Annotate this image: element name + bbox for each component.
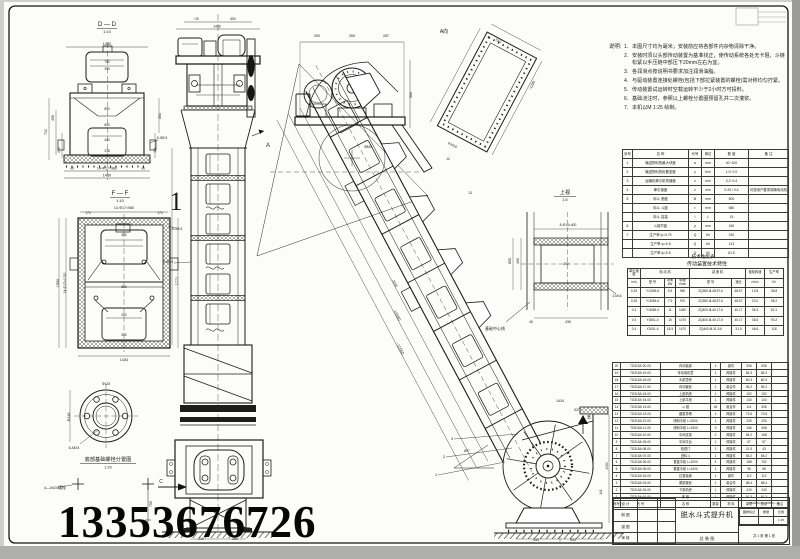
table-cell: 1	[711, 418, 721, 425]
bom-table: 20TD315A·20-00传动装置1部件53653619TD315A·19-0…	[612, 362, 788, 508]
table-cell: TD315A·03-00	[621, 480, 661, 487]
view-scale-rail: 1:5	[562, 198, 567, 202]
table-cell	[772, 487, 789, 494]
table-cell: 圆弧导槽	[661, 411, 711, 418]
table-cell: 73.6	[742, 411, 757, 418]
table-cell: mm	[702, 159, 715, 168]
dimension-label: 1771	[175, 277, 179, 285]
table-cell: 生产率	[765, 269, 784, 279]
table-cell: 型 号	[690, 278, 732, 288]
dimension-label: 170	[157, 211, 163, 215]
table-cell: 上部机壳	[661, 390, 711, 397]
table-cell: 86.3	[757, 369, 772, 376]
table-cell: 98	[742, 466, 757, 473]
table-cell	[772, 369, 789, 376]
dimension-label: 2	[443, 455, 445, 459]
dimension-label: 8-Φ14=400	[560, 223, 577, 227]
table-cell	[623, 249, 633, 258]
dimension-label: 101	[153, 147, 157, 153]
table-cell: 970	[676, 297, 690, 307]
table-cell: 93.2	[765, 316, 784, 326]
table-cell	[623, 240, 633, 249]
table-cell: 14	[613, 404, 621, 411]
table-cell: 设 计	[614, 499, 638, 510]
table-cell: TD315A·20-00	[621, 363, 661, 370]
dimension-label: 13	[468, 191, 472, 195]
table-cell: 21.5	[742, 445, 757, 452]
dimension-label: 6-Φ8.5	[157, 136, 168, 140]
table-cell: L	[702, 213, 715, 222]
table-cell: 生产率 ψ=0.5	[633, 249, 689, 258]
table-cell: 960	[676, 288, 690, 298]
table-cell	[658, 532, 676, 543]
dimension-label: 600	[104, 123, 110, 127]
table-cell: 可按用户要求调换电动机	[749, 186, 789, 195]
note-item: 2.安装时须以头部传动装置为基准找正，使传动系统各处无卡阻，斗链松紧以手压链中部…	[624, 53, 787, 66]
dimension-label: 6-M24	[69, 446, 80, 450]
note-item: 5.传动装置试运转时空载运转不少于2小时方可投料。	[624, 87, 787, 94]
note-item: 3.各润滑点按说明书要求加注润滑油脂。	[624, 69, 787, 76]
table-cell: 5	[613, 466, 621, 473]
table-cell: 40.17	[732, 316, 746, 326]
table-cell: 电 动 机	[641, 269, 690, 279]
table-cell: 205	[757, 418, 772, 425]
table-cell: 4	[711, 459, 721, 466]
table-cell: TD315A·12-00	[621, 418, 661, 425]
table-cell: 制 图	[614, 510, 638, 521]
dimension-label: ~25	[193, 17, 199, 21]
table-cell: 料斗 斗距	[633, 204, 689, 213]
table-cell: 斗链节距	[633, 222, 689, 231]
table-cell: 1	[711, 383, 721, 390]
table-cell: 1	[711, 363, 721, 370]
table-cell: 65.2	[742, 452, 757, 459]
table-cell: 65.2	[757, 452, 772, 459]
table-cell: 46.6	[746, 326, 765, 336]
view-arrow-a: A	[266, 143, 270, 149]
table-cell	[772, 411, 789, 418]
dimension-label: 46	[141, 167, 145, 171]
table-cell: 96.2	[742, 383, 757, 390]
table-cell: 1	[711, 376, 721, 383]
table-cell: 62.1	[765, 307, 784, 317]
table-cell: 48.57	[732, 288, 746, 298]
table-cell: 牵引速度	[628, 269, 641, 279]
table-cell: 43	[757, 445, 772, 452]
notes-label: 说明:	[609, 44, 621, 51]
table-cell: 7	[623, 231, 633, 240]
table-cell: 输送物料的最大块度	[633, 159, 689, 168]
table-cell: t/h	[702, 231, 715, 240]
table-cell: 112	[742, 473, 757, 480]
table-cell: TD315A·14-00	[621, 404, 661, 411]
table-cell: 上部平段	[661, 397, 711, 404]
table-cell	[772, 397, 789, 404]
table-cell: 检视门	[661, 445, 711, 452]
table-cell: ZQ350-Ⅲ-48.57-Ⅱ	[690, 297, 732, 307]
table-cell	[772, 376, 789, 383]
note-item: 6.基础浇注时，参照以上螺栓分置图预留孔并二次灌浆。	[624, 96, 787, 103]
table-cell: 205	[742, 418, 757, 425]
table-cell: 焊接件	[721, 425, 742, 432]
table-cell	[749, 177, 789, 186]
phone-number-watermark: 13353676726	[58, 496, 317, 548]
dimension-label: 1050	[605, 462, 609, 470]
view-title-rail: 上视	[560, 188, 570, 196]
note-item: 7.本机以M 1:25 绘制。	[624, 105, 787, 112]
dimension-label: 287	[383, 34, 389, 38]
table-cell	[658, 510, 676, 521]
table-cell: 5	[623, 195, 633, 204]
table-cell: 13	[613, 411, 621, 418]
table-cell: 88.4	[757, 480, 772, 487]
dimension-label: 712	[44, 129, 48, 135]
note-item: 4.与驱动装置连接处螺栓(包括下部拉紧装置的螺栓)需对称均匀拧紧。	[624, 78, 787, 85]
table-cell	[623, 204, 633, 213]
table-cell: 8	[613, 445, 621, 452]
table-cell: Q	[689, 240, 702, 249]
dimension-label: 430	[565, 320, 571, 324]
table-cell	[772, 466, 789, 473]
table-cell: 传动装置	[661, 363, 711, 370]
table-cell: Y160M-4	[641, 307, 665, 317]
table-cell: 功率 kW	[665, 278, 676, 288]
table-cell: 焊接件	[721, 369, 742, 376]
table-cell: TD315A·09-00	[621, 438, 661, 445]
table-cell: 15	[613, 397, 621, 404]
view-arrow-c: C	[159, 479, 163, 485]
title-block-right: 7.5A68×(Φ)—45M(—)·· 图样标记重量比例1:25 共 1 张 第…	[739, 498, 789, 544]
table-cell: 1:25	[774, 517, 789, 525]
table-cell: 536	[757, 363, 772, 370]
table-cell: m/s	[702, 177, 715, 186]
table-cell: 倾斜中段 L=1500	[661, 425, 711, 432]
drawing-code: 7.5A68×(Φ)—45M(—)··	[739, 498, 789, 508]
table-cell: 19	[613, 369, 621, 376]
table-cell: 18	[613, 376, 621, 383]
table-cell: 18.5	[665, 326, 676, 336]
table-cell: 传动链轮	[661, 383, 711, 390]
dimension-label: 8-Φ8.5	[163, 260, 173, 264]
table-cell: 15	[665, 316, 676, 326]
table-cell: 名 称	[633, 150, 689, 159]
table-cell: TD315A·19-00	[621, 369, 661, 376]
table-cell: m/s	[702, 186, 715, 195]
table-cell: Y180L-4	[641, 316, 665, 326]
table-cell: TD315A·06-00	[621, 459, 661, 466]
table-cell	[749, 204, 789, 213]
table-cell: 98	[757, 466, 772, 473]
table-cell: 16	[613, 390, 621, 397]
table-cell: 3	[613, 480, 621, 487]
table-cell: t/h	[702, 240, 715, 249]
dimension-label: 12	[446, 157, 450, 161]
table-cell: 料斗 宽度	[633, 195, 689, 204]
table-cell	[623, 213, 633, 222]
table-cell: 备 注	[749, 150, 789, 159]
table-cell	[772, 459, 789, 466]
table-cell: 36.6	[746, 316, 765, 326]
table-cell: 拉紧装置	[661, 473, 711, 480]
table-cell: TD315A·16-00	[621, 390, 661, 397]
table-cell: 31.5	[732, 326, 746, 336]
sheet-number: 1	[170, 187, 183, 216]
table-cell: 焊接件	[721, 445, 742, 452]
dimension-label: 14-Φ17=1030	[63, 272, 67, 293]
table-cell: γ	[689, 168, 702, 177]
table-cell: TD315A·17-00	[621, 383, 661, 390]
table-cell: 焊接件	[721, 487, 742, 494]
chain-guide-dark	[248, 55, 255, 77]
table-cell: 152	[757, 390, 772, 397]
table-cell: mm	[702, 195, 715, 204]
table-cell: 10	[613, 431, 621, 438]
table-cell: 96.2	[757, 383, 772, 390]
table-cell: 传动电机罩	[661, 369, 711, 376]
dimension-label: 1	[435, 473, 437, 477]
dimension-label: 238	[104, 149, 110, 153]
table-cell: 152	[742, 390, 757, 397]
table-cell: 1	[623, 159, 633, 168]
table-cell: 134	[742, 397, 757, 404]
drawing-sheet: D — D1:10143075029085060044423814-Φ17=98…	[0, 0, 800, 559]
table-cell: 20.0	[746, 297, 765, 307]
table-cell: 150	[715, 231, 749, 240]
table-cell: 描 图	[614, 521, 638, 532]
table-cell: 斗 链	[661, 404, 711, 411]
dimension-label: 400	[516, 258, 520, 264]
table-cell: 运输机牵引机构速度	[633, 177, 689, 186]
notes-list: 1.本图尺寸均为毫米；安装前应将各部件内杂物清除干净。2.安装时须以头部传动装置…	[624, 44, 787, 111]
dimension-label: 530	[121, 333, 127, 337]
table-cell: t/m³	[702, 168, 715, 177]
dimension-label: 141	[599, 489, 603, 495]
table-cell: 1460	[676, 307, 690, 317]
table-cell: 306	[757, 404, 772, 411]
title-block: 设 计制 图描 图审 核 脱水斗式提升机 总 装 图 7.5A68×(Φ)—45…	[612, 497, 790, 545]
table-cell: TD315A·07-00	[621, 452, 661, 459]
table-cell: 40.17	[732, 307, 746, 317]
table-cell: Q	[689, 231, 702, 240]
table-cell: ZQ400-Ⅲ-40.17-Ⅱ	[690, 316, 732, 326]
table-cell: 80.3	[742, 376, 757, 383]
trans-table-title: 传动装置技术特性	[687, 261, 727, 268]
table-cell: p	[689, 222, 702, 231]
table-cell: 链轮转速	[746, 269, 765, 279]
table-cell: 1	[711, 369, 721, 376]
view-scale-dd: 1:10	[103, 29, 112, 34]
table-cell	[749, 249, 789, 258]
table-cell: 0.4	[628, 316, 641, 326]
table-cell: 5.5	[665, 288, 676, 298]
table-cell: 1	[711, 411, 721, 418]
table-cell	[772, 404, 789, 411]
dimension-label: 170	[85, 211, 91, 215]
table-cell: Y200L-4	[641, 326, 665, 336]
table-cell: 减 速 机	[690, 269, 746, 279]
dimension-label: 260	[121, 313, 127, 317]
table-cell: 20	[613, 363, 621, 370]
table-cell: 牵引速度	[633, 186, 689, 195]
table-cell: TD315A·02-00	[621, 487, 661, 494]
note-item: 1.本图尺寸均为毫米；安装前应将各部件内杂物清除干净。	[624, 44, 787, 51]
table-cell	[658, 499, 676, 510]
table-cell: 焊接件	[721, 459, 742, 466]
table-cell: 45	[711, 404, 721, 411]
title-block-scale-grid: 图样标记重量比例1:25	[739, 508, 789, 526]
dimension-label: 14-Φ17=980	[114, 206, 134, 210]
table-cell: TD315A·11-00	[621, 425, 661, 432]
table-cell: Y160M-6	[641, 297, 665, 307]
dimension-label: 1434	[120, 358, 128, 362]
table-cell: 84.2	[742, 431, 757, 438]
table-cell: 焊接件	[721, 411, 742, 418]
table-cell: 1	[711, 438, 721, 445]
table-cell: 680	[715, 204, 749, 213]
table-cell: v	[689, 177, 702, 186]
table-cell: 焊接件	[721, 418, 742, 425]
table-cell: 2	[711, 431, 721, 438]
table-cell: 0.4	[628, 307, 641, 317]
table-cell: 生产率 ψ=0.75	[633, 231, 689, 240]
drawing-title: 脱水斗式提升机	[676, 498, 738, 532]
dimension-label: 560	[409, 92, 413, 98]
table-cell: 73.6	[757, 411, 772, 418]
table-cell: 11	[613, 425, 621, 432]
table-cell: 速比	[732, 278, 746, 288]
table-cell: 1	[711, 473, 721, 480]
table-cell: 9	[613, 438, 621, 445]
table-cell: TD315A·08-00	[621, 445, 661, 452]
table-cell: a	[689, 159, 702, 168]
table-cell: 焊接件	[721, 438, 742, 445]
table-cell: 0.2~0.4	[715, 177, 749, 186]
dimension-label: 1150	[214, 409, 221, 413]
table-cell: t/h	[765, 278, 784, 288]
dimension-label: 800	[121, 285, 127, 289]
table-cell: 134	[757, 397, 772, 404]
table-cell: 1	[711, 390, 721, 397]
table-cell: 重量	[759, 509, 774, 517]
table-cell: 转速 r/min	[676, 278, 690, 288]
drawing-subtitle: 总 装 图	[676, 532, 738, 544]
dimension-label: 444	[104, 138, 110, 142]
table-cell: 组合件	[721, 383, 742, 390]
table-cell: 中间支架	[661, 431, 711, 438]
title-block-signatures: 设 计制 图描 图审 核	[613, 498, 676, 544]
table-cell: 243	[742, 487, 757, 494]
table-cell: 0.25	[628, 297, 641, 307]
dimension-label: 4-Φ8.5	[172, 227, 183, 231]
dimension-label: 290	[104, 67, 110, 71]
dimension-label: 850	[104, 107, 110, 111]
dimension-label: 1430	[103, 174, 111, 178]
dimension-label: 265	[349, 34, 355, 38]
table-cell: i	[689, 213, 702, 222]
table-cell	[749, 240, 789, 249]
table-cell: 19.8	[746, 288, 765, 298]
table-cell: 焊接件	[721, 452, 742, 459]
dimension-label: 543	[570, 538, 576, 542]
table-cell: 倾斜中段 L=2000	[661, 418, 711, 425]
table-cell	[772, 390, 789, 397]
table-cell	[772, 363, 789, 370]
table-cell: 15	[715, 213, 749, 222]
table-cell: t	[689, 204, 702, 213]
table-cell: 焊接件	[721, 431, 742, 438]
table-cell: mm	[702, 222, 715, 231]
table-cell: 38.8	[765, 288, 784, 298]
dimension-label: 300	[563, 262, 569, 266]
table-cell: 垂直中段 L=1000	[661, 466, 711, 473]
table-cell: 2	[613, 487, 621, 494]
table-cell: 12	[613, 418, 621, 425]
table-cell: 进料斗	[661, 452, 711, 459]
table-cell: 188	[742, 459, 757, 466]
table-cell: 图样标记	[740, 509, 759, 517]
table-cell: 3	[623, 177, 633, 186]
table-cell: Q	[689, 249, 702, 258]
table-cell: 7	[613, 452, 621, 459]
table-cell: 部件	[721, 363, 742, 370]
table-cell: 审 核	[614, 532, 638, 543]
view-scale-ff: 1:10	[116, 198, 125, 203]
dimension-label: 3	[451, 437, 453, 441]
table-cell	[638, 521, 658, 532]
table-cell: ZQ350-Ⅲ-48.57-Ⅱ	[690, 288, 732, 298]
table-cell: 243	[757, 487, 772, 494]
table-cell: 86.3	[742, 369, 757, 376]
table-cell: B	[689, 195, 702, 204]
table-cell: 80.3	[757, 376, 772, 383]
dimension-label: 1590	[56, 279, 60, 287]
table-cell: 498	[757, 425, 772, 432]
table-cell: m/s	[628, 278, 641, 288]
table-cell: 40~100	[715, 159, 749, 168]
table-cell: 1	[711, 466, 721, 473]
table-cell: v	[689, 186, 702, 195]
table-cell	[749, 159, 789, 168]
table-cell	[749, 168, 789, 177]
table-cell: ZQ400-Ⅲ-31.5-Ⅱ	[690, 326, 732, 336]
dimension-label: 300	[121, 233, 127, 237]
table-cell: 型 号	[641, 278, 665, 288]
table-cell: 17	[613, 383, 621, 390]
table-cell: TD315A·15-00	[621, 397, 661, 404]
table-cell	[772, 480, 789, 487]
table-cell: 112	[757, 473, 772, 480]
dimension-label: 14-Φ17=980	[97, 167, 117, 171]
dimension-label: 361	[158, 113, 162, 119]
table-cell	[772, 431, 789, 438]
table-cell: 536	[742, 363, 757, 370]
table-cell	[749, 213, 789, 222]
dimension-label: 1430	[103, 42, 111, 46]
dimension-label: Φ820	[364, 145, 372, 149]
table-cell: 尾部链轮	[661, 480, 711, 487]
table-cell: 6.8	[742, 404, 757, 411]
table-cell: 输送物料的松散密度	[633, 168, 689, 177]
table-cell: 焊接件	[721, 397, 742, 404]
table-cell: TD315A·04-00	[621, 473, 661, 480]
dimension-label: 210	[57, 147, 61, 153]
table-cell: 1	[711, 480, 721, 487]
dimension-label: 545	[533, 538, 539, 542]
table-cell	[658, 521, 676, 532]
table-cell	[772, 445, 789, 452]
table-cell	[772, 383, 789, 390]
table-cell: TD315A·13-00	[621, 411, 661, 418]
